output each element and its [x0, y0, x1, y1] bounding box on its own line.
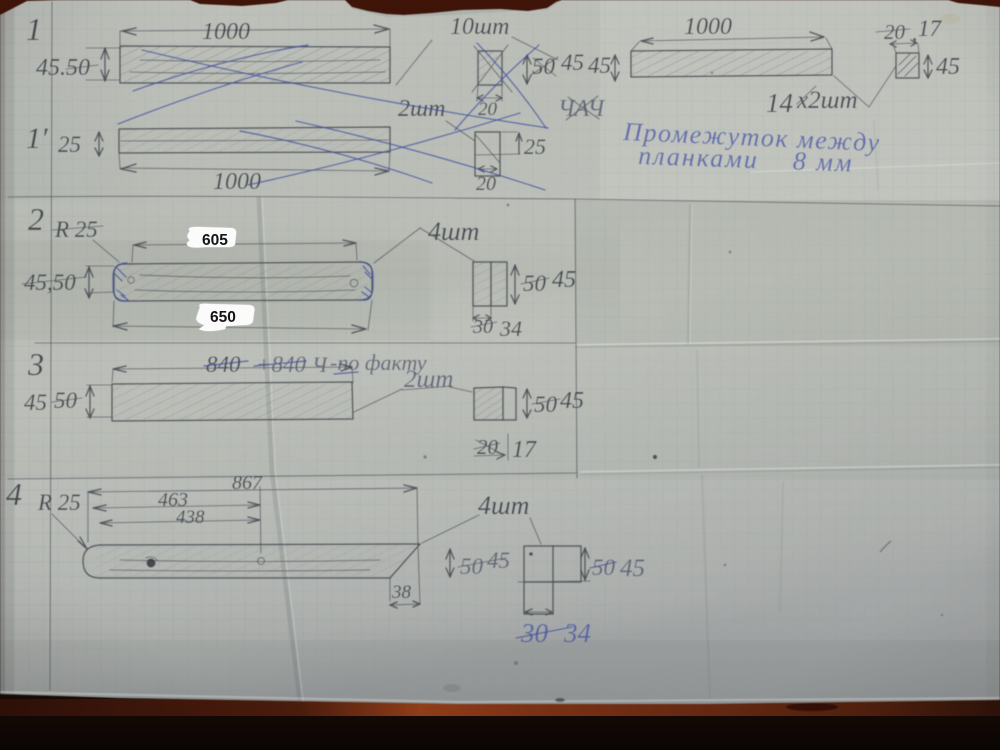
svg-text:Ч: Ч	[312, 352, 329, 377]
svg-text:25: 25	[524, 134, 546, 159]
svg-text:3: 3	[27, 346, 44, 382]
svg-text:2: 2	[28, 201, 44, 237]
svg-text:14: 14	[766, 88, 793, 118]
svg-text:4: 4	[6, 476, 22, 512]
svg-text:1′: 1′	[26, 122, 48, 155]
svg-text:45: 45	[487, 548, 510, 573]
svg-text:30: 30	[472, 316, 493, 338]
svg-text:45: 45	[561, 50, 584, 75]
svg-text:438: 438	[176, 507, 205, 528]
svg-text:50: 50	[523, 271, 547, 296]
svg-text:1000: 1000	[213, 169, 261, 195]
svg-text:1: 1	[26, 11, 42, 47]
svg-text:17: 17	[512, 437, 537, 463]
svg-text:4шт: 4шт	[478, 491, 529, 520]
svg-text:20: 20	[884, 20, 906, 44]
svg-text:650: 650	[210, 309, 236, 326]
svg-text:х2шт: х2шт	[796, 87, 858, 114]
svg-text:2шт: 2шт	[398, 96, 445, 122]
svg-text:17: 17	[918, 16, 943, 41]
svg-text:1000: 1000	[684, 14, 732, 40]
svg-text:R 25: R 25	[37, 490, 81, 515]
svg-text:25: 25	[58, 132, 81, 157]
svg-text:45: 45	[620, 555, 645, 582]
svg-text:50: 50	[534, 392, 558, 417]
svg-text:605: 605	[202, 232, 228, 249]
svg-text:34: 34	[563, 618, 591, 648]
svg-text:45.50: 45.50	[36, 55, 90, 81]
svg-text:20: 20	[476, 173, 496, 195]
svg-text:45: 45	[936, 54, 960, 80]
svg-text:4шт: 4шт	[428, 217, 479, 246]
svg-text:45: 45	[588, 53, 611, 78]
svg-text:45: 45	[24, 390, 47, 415]
svg-text:45: 45	[560, 388, 584, 414]
svg-text:38: 38	[391, 582, 412, 603]
svg-text:10шт: 10шт	[450, 14, 509, 40]
svg-text:1000: 1000	[202, 19, 250, 45]
svg-text:50: 50	[592, 555, 616, 580]
svg-text:45: 45	[552, 267, 576, 293]
svg-text:34: 34	[499, 316, 522, 341]
